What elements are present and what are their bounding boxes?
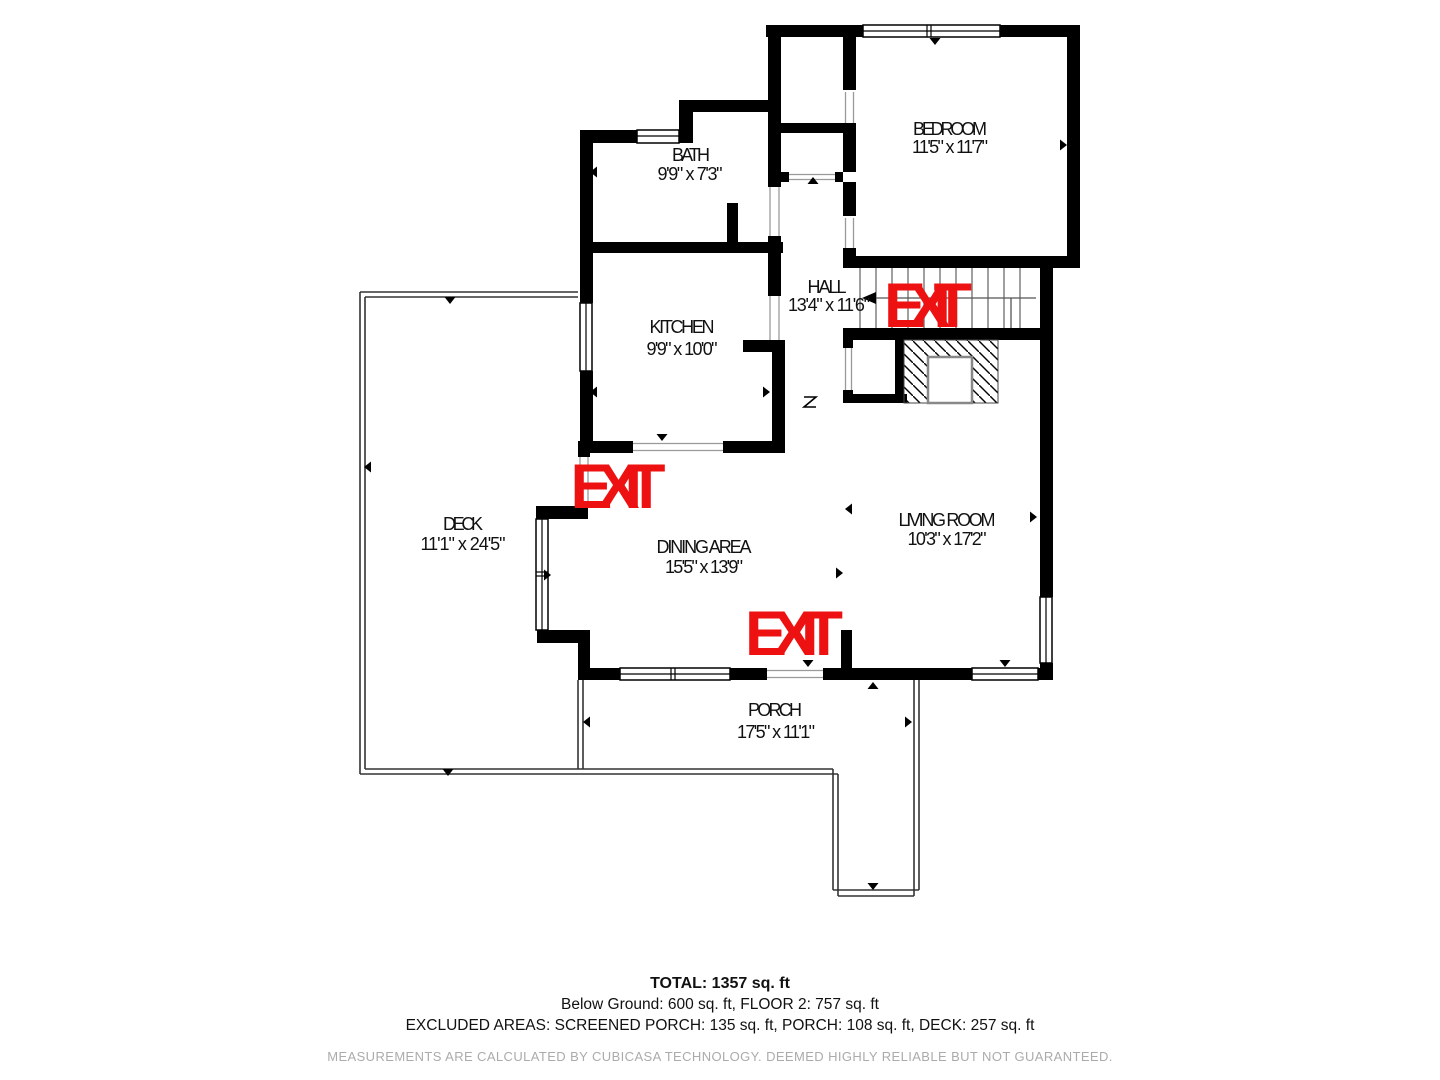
wall — [537, 630, 590, 643]
wall — [781, 172, 789, 182]
wall — [730, 668, 767, 680]
wall — [580, 242, 783, 253]
floor-plan-svg: BATH 9'9" x 7'3" BEDROOM 11'5" x 11'7" H… — [0, 0, 1440, 1080]
door-swing-mark — [804, 397, 816, 407]
footer-summary: TOTAL: 1357 sq. ft Below Ground: 600 sq.… — [0, 975, 1440, 1064]
wall — [580, 130, 593, 252]
wall — [772, 340, 785, 453]
room-label-dining: DINING AREA — [657, 537, 752, 557]
room-dims-hall: 13'4" x 11'6" — [788, 295, 870, 315]
wall — [679, 100, 693, 143]
wall — [843, 182, 856, 216]
wall — [727, 203, 738, 243]
room-dims-deck: 11'1" x 24'5" — [421, 534, 506, 554]
wall — [1067, 25, 1080, 268]
wall — [895, 340, 904, 403]
deck-porch-outline — [360, 292, 919, 896]
room-dims-bedroom: 11'5" x 11'7" — [912, 137, 988, 157]
wall — [835, 172, 843, 182]
wall — [1038, 668, 1053, 680]
wall — [781, 123, 843, 133]
total-area-text: TOTAL: 1357 sq. ft — [0, 975, 1440, 993]
excluded-areas-text: EXCLUDED AREAS: SCREENED PORCH: 135 sq. … — [0, 1017, 1440, 1035]
room-label-kitchen: KITCHEN — [650, 317, 715, 337]
disclaimer-text: MEASUREMENTS ARE CALCULATED BY CUBICASA … — [0, 1049, 1440, 1064]
wall — [580, 371, 593, 443]
wall — [843, 123, 856, 172]
room-label-deck: DECK — [443, 514, 483, 534]
floorplan-page: { "rooms": { "bath": {"name": "BATH", "d… — [0, 0, 1440, 1080]
wall — [580, 252, 593, 303]
exit-label-deck: EXIT — [571, 452, 666, 522]
wall — [823, 668, 972, 680]
wall — [843, 340, 853, 348]
room-labels: BATH 9'9" x 7'3" BEDROOM 11'5" x 11'7" H… — [421, 119, 996, 742]
room-label-hall: HALL — [808, 277, 847, 297]
floor-areas-text: Below Ground: 600 sq. ft, FLOOR 2: 757 s… — [0, 996, 1440, 1014]
room-dims-porch: 17'5" x 11'1" — [737, 722, 815, 742]
exit-label-porch: EXIT — [745, 599, 843, 669]
room-dims-bath: 9'9" x 7'3" — [658, 164, 723, 184]
room-label-bedroom: BEDROOM — [913, 119, 987, 139]
wall — [1040, 256, 1053, 597]
exit-label-hall: EXIT — [884, 271, 972, 341]
room-dims-living: 10'3" x 17'2" — [908, 529, 987, 549]
wall — [843, 25, 863, 37]
room-dims-dining: 15'5" x 13'9" — [665, 557, 743, 577]
room-dims-kitchen: 9'9" x 10'0" — [647, 339, 718, 359]
exit-labels: EXIT EXIT EXIT — [571, 271, 973, 669]
room-label-bath: BATH — [672, 145, 710, 165]
room-label-living: LIVING ROOM — [899, 510, 996, 530]
fireplace-box — [928, 357, 972, 403]
wall — [743, 340, 785, 352]
room-label-porch: PORCH — [748, 700, 802, 720]
